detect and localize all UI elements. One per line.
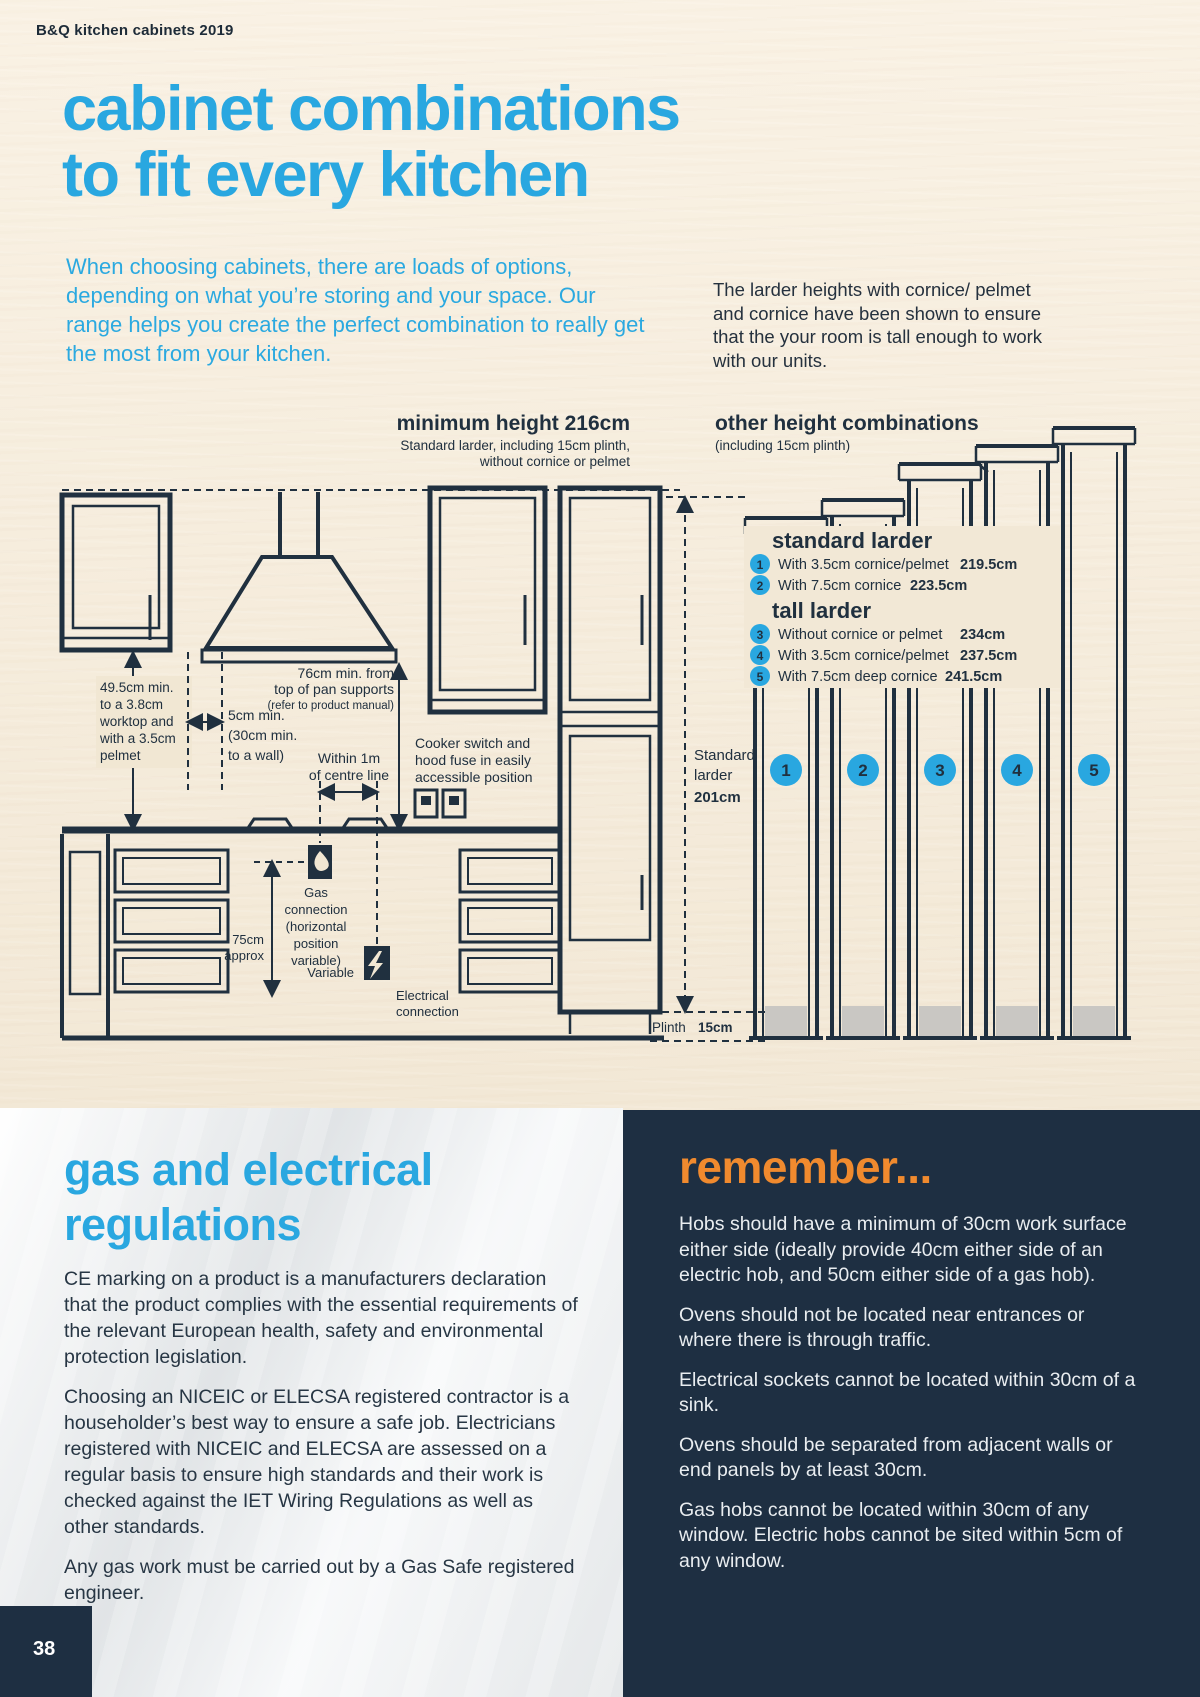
regulations-title: gas and electrical regulations <box>64 1142 544 1252</box>
remember-paragraph: Ovens should be separated from adjacent … <box>679 1433 1141 1484</box>
remember-paragraph: Ovens should not be located near entranc… <box>679 1303 1141 1354</box>
legend-item-3-value: 234cm <box>960 627 1005 643</box>
legend-item-4-value: 237.5cm <box>960 648 1017 664</box>
wall-cabinet-middle <box>430 488 545 712</box>
brand-header: B&Q kitchen cabinets 2019 <box>36 22 234 39</box>
page-title: cabinet combinations to fit every kitche… <box>62 76 680 208</box>
svg-text:75cm: 75cm <box>232 932 264 947</box>
cabinet-diagram: minimum height 216cm Standard larder, in… <box>0 400 1200 1065</box>
intro-paragraph: When choosing cabinets, there are loads … <box>66 252 656 368</box>
regulations-paragraphs: CE marking on a product is a manufacture… <box>64 1266 579 1620</box>
remember-section: remember... Hobs should have a minimum o… <box>623 1110 1200 1697</box>
cooker-switch-label: Cooker switch and hood fuse in easily ac… <box>415 735 533 785</box>
remember-paragraphs: Hobs should have a minimum of 30cm work … <box>679 1212 1141 1588</box>
svg-text:Gas: Gas <box>304 885 328 900</box>
svg-text:Electrical: Electrical <box>396 988 449 1003</box>
svg-text:49.5cm min.: 49.5cm min. <box>100 680 174 695</box>
dim-76cm-label: 76cm min. from top of pan supports (refe… <box>267 665 394 712</box>
other-heights-heading: other height combinations <box>715 412 979 435</box>
svg-text:larder: larder <box>694 767 732 784</box>
svg-text:worktop and: worktop and <box>99 714 174 729</box>
page-number-box: 38 <box>0 1606 92 1697</box>
remember-paragraph: Electrical sockets cannot be located wit… <box>679 1368 1141 1419</box>
legend-badge-1-num: 1 <box>757 558 764 572</box>
cabinet-diagram-svg: minimum height 216cm Standard larder, in… <box>0 400 1200 1060</box>
svg-text:Within 1m: Within 1m <box>318 750 380 766</box>
other-heights-sub: (including 15cm plinth) <box>715 438 850 453</box>
page-title-line2: to fit every kitchen <box>62 142 680 208</box>
centre-line-label: Within 1m of centre line <box>309 750 389 783</box>
base-units <box>62 834 664 1038</box>
svg-text:to a 3.8cm: to a 3.8cm <box>100 697 163 712</box>
svg-text:to a wall): to a wall) <box>228 747 284 763</box>
svg-text:Cooker switch and: Cooker switch and <box>415 735 530 751</box>
legend-badge-3-num: 3 <box>757 628 764 642</box>
svg-text:accessible position: accessible position <box>415 769 533 785</box>
combo-badge-5: 5 <box>1089 761 1098 780</box>
combo-number-badges: 1 2 3 4 5 <box>770 754 1110 786</box>
wall-cabinet-left <box>62 495 170 650</box>
worktop <box>62 819 560 830</box>
standard-larder-cabinet <box>560 488 660 1034</box>
legend-item-1-label: With 3.5cm cornice/pelmet <box>778 557 949 573</box>
switch-icons <box>415 790 465 817</box>
svg-text:with a 3.5cm: with a 3.5cm <box>99 731 176 746</box>
min-height-sub1: Standard larder, including 15cm plinth, <box>400 438 630 453</box>
svg-text:201cm: 201cm <box>694 789 741 806</box>
dim-75cm-label: 75cm approx <box>224 932 264 963</box>
regulations-paragraph: Any gas work must be carried out by a Ga… <box>64 1554 579 1606</box>
svg-text:connection: connection <box>285 902 348 917</box>
min-height-heading: minimum height 216cm <box>397 412 630 435</box>
legend-item-5-value: 241.5cm <box>945 669 1002 685</box>
page-number: 38 <box>33 1638 55 1661</box>
regulations-section: gas and electrical regulations CE markin… <box>0 1108 623 1697</box>
gas-connection-label: Gas connection (horizontal position vari… <box>285 885 348 968</box>
remember-paragraph: Hobs should have a minimum of 30cm work … <box>679 1212 1141 1289</box>
svg-text:position: position <box>294 936 339 951</box>
svg-text:(refer to product manual): (refer to product manual) <box>267 700 394 712</box>
dim-5cm-label: 5cm min. (30cm min. to a wall) <box>228 707 297 763</box>
svg-text:(30cm min.: (30cm min. <box>228 727 297 743</box>
legend-item-2-label: With 7.5cm cornice <box>778 578 901 594</box>
regulations-paragraph: Choosing an NICEIC or ELECSA registered … <box>64 1384 579 1540</box>
legend-item-1-value: 219.5cm <box>960 557 1017 573</box>
legend-item-5-label: With 7.5cm deep cornice <box>778 669 938 685</box>
legend-item-3-label: Without cornice or pelmet <box>778 627 942 643</box>
svg-text:approx: approx <box>224 948 264 963</box>
svg-text:hood fuse in easily: hood fuse in easily <box>415 752 531 768</box>
larder-note-paragraph: The larder heights with cornice/ pelmet … <box>713 278 1043 372</box>
combo-badge-2: 2 <box>858 761 867 780</box>
svg-text:Plinth: Plinth <box>652 1020 686 1035</box>
plinth-label: Plinth 15cm <box>652 1020 733 1035</box>
page-title-line1: cabinet combinations <box>62 76 680 142</box>
remember-paragraph: Gas hobs cannot be located within 30cm o… <box>679 1498 1141 1575</box>
legend-badge-4-num: 4 <box>757 649 764 663</box>
svg-text:(horizontal: (horizontal <box>286 919 347 934</box>
legend-badge-5-num: 5 <box>757 670 764 684</box>
combo-badge-3: 3 <box>935 761 944 780</box>
legend-badge-2-num: 2 <box>757 579 764 593</box>
larder-combo-5 <box>1053 428 1135 1038</box>
electrical-label: Electrical connection <box>396 988 459 1019</box>
catalog-page: B&Q kitchen cabinets 2019 cabinet combin… <box>0 0 1200 1697</box>
larder-combos <box>745 428 1135 1038</box>
svg-text:of centre line: of centre line <box>309 767 389 783</box>
svg-text:15cm: 15cm <box>698 1020 733 1035</box>
remember-title: remember... <box>679 1140 932 1194</box>
tall-larder-title: tall larder <box>772 598 871 623</box>
combo-badge-1: 1 <box>781 761 790 780</box>
legend-item-2-value: 223.5cm <box>910 578 967 594</box>
svg-text:Standard: Standard <box>694 747 755 764</box>
legend-item-4-label: With 3.5cm cornice/pelmet <box>778 648 949 664</box>
svg-text:76cm min. from: 76cm min. from <box>298 665 394 681</box>
standard-larder-title: standard larder <box>772 528 933 553</box>
svg-text:top of pan supports: top of pan supports <box>274 681 394 697</box>
cooker-hood <box>202 492 396 662</box>
min-height-sub2: without cornice or pelmet <box>479 454 630 469</box>
standard-larder-measure-label: Standard larder 201cm <box>694 747 755 806</box>
combo-badge-4: 4 <box>1012 761 1022 780</box>
regulations-paragraph: CE marking on a product is a manufacture… <box>64 1266 579 1370</box>
svg-text:connection: connection <box>396 1004 459 1019</box>
svg-text:pelmet: pelmet <box>100 748 141 763</box>
variable-label: Variable <box>307 965 354 980</box>
